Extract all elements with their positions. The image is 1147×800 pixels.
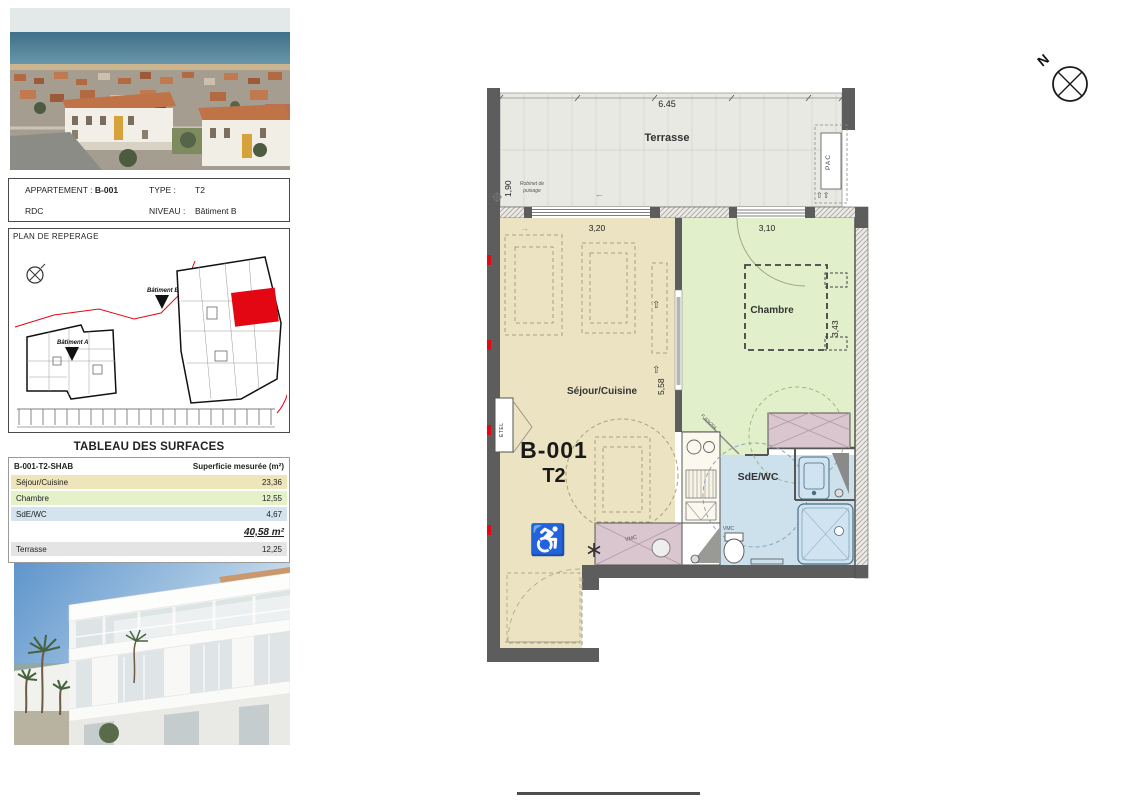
row-value: 12,55	[262, 494, 282, 503]
unit-type-label: T2	[509, 465, 599, 488]
aerial-photo-graphic	[10, 8, 290, 170]
north-compass: N	[1030, 46, 1102, 110]
aerial-photo	[10, 8, 290, 170]
shower	[798, 504, 853, 564]
beach	[10, 64, 290, 71]
chambre-height-dim: 3,43	[830, 320, 840, 337]
brochure-page: APPARTEMENT : B-001 TYPE : T2 RDC NIVEAU…	[0, 0, 1147, 800]
info-row-1: APPARTEMENT : B-001 TYPE : T2	[9, 179, 289, 200]
row-label: Chambre	[16, 494, 49, 503]
chambre-label: Chambre	[717, 305, 827, 316]
surface-table-header-left: B-001-T2-SHAB	[14, 462, 73, 471]
slide-arrow-icon: ⇧	[652, 300, 660, 311]
pac-arrows: ⇧⇧	[816, 191, 829, 200]
highlighted-unit	[231, 288, 279, 327]
building-a-label: Bâtiment A	[57, 340, 88, 346]
row-label: Séjour/Cuisine	[16, 478, 68, 487]
row-label: SdE/WC	[16, 510, 47, 519]
robinet-label: Robinet de puisage	[511, 181, 553, 194]
tree	[180, 132, 196, 148]
row-value: 12,25	[262, 545, 282, 554]
building-render-photo	[14, 563, 290, 745]
door-stop	[835, 489, 843, 497]
alcove-south-wall	[487, 648, 599, 662]
toilet	[724, 533, 744, 563]
floor-plan-graphic	[487, 85, 870, 675]
row-value: 23,36	[262, 478, 282, 487]
east-wall-insulated	[855, 218, 868, 578]
table-row-sejour: Séjour/Cuisine 23,36	[11, 475, 287, 489]
terrasse-label: Terrasse	[607, 132, 727, 144]
info-row-2: RDC NIVEAU : Bâtiment B	[9, 200, 289, 221]
partition-bottom	[675, 390, 682, 432]
partition-top	[675, 218, 682, 290]
vmc-label: VMC	[723, 526, 734, 532]
parking-strip	[17, 409, 275, 427]
technical-shaft	[682, 523, 720, 565]
south-wall	[582, 565, 868, 578]
type-label: TYPE :	[149, 185, 195, 195]
location-plan-graphic: Bâtiment A Bâtiment B	[9, 231, 287, 431]
surface-table: B-001-T2-SHAB Superficie mesurée (m²) Sé…	[8, 457, 290, 563]
niveau-label: NIVEAU :	[149, 206, 195, 216]
surface-total: 40,58 m²	[9, 523, 289, 542]
sejour-width-dim: 3,20	[547, 223, 647, 233]
wc-closet	[595, 523, 682, 565]
slide-arrow-icon: ⇧	[652, 365, 660, 376]
etel-label: ETEL	[499, 422, 505, 437]
appliance	[686, 470, 716, 498]
tree	[253, 143, 267, 157]
site-boundary-red-curve	[277, 381, 287, 413]
tree	[119, 149, 137, 167]
table-row-sde: SdE/WC 4,67	[11, 507, 287, 521]
location-plan-card: PLAN DE REPERAGE	[8, 228, 290, 433]
surface-table-title: TABLEAU DES SURFACES	[8, 441, 290, 453]
page-footer-mark	[517, 792, 700, 795]
mini-compass-icon	[27, 264, 45, 283]
row-label: Terrasse	[16, 545, 47, 554]
unit-code-label: B-001	[509, 437, 599, 464]
chambre-width-dim: 3,10	[722, 223, 812, 233]
building-a-footprint	[27, 325, 116, 399]
table-row-terrasse: Terrasse 12,25	[11, 542, 287, 556]
wheelchair-icon: ♿	[529, 523, 566, 558]
left-arrow-icon: ←	[595, 189, 604, 199]
sejour-label: Séjour/Cuisine	[542, 386, 662, 397]
building-b-label: Bâtiment B	[147, 288, 179, 294]
building-b-footprint	[177, 257, 281, 403]
sliding-door-panel[interactable]	[677, 297, 681, 385]
floor-label: RDC	[25, 206, 149, 216]
floor-plan: Terrasse 6.45 1,90 Robinet de puisage PA…	[487, 85, 870, 675]
appartement-label: APPARTEMENT : B-001	[25, 185, 149, 195]
foreground-building-left	[62, 92, 176, 150]
sea	[10, 32, 290, 66]
surface-table-header-right: Superficie mesurée (m²)	[193, 462, 284, 471]
ground	[14, 711, 69, 745]
shrub	[99, 723, 119, 743]
north-wall-band	[487, 207, 868, 218]
appartement-value: B-001	[95, 185, 118, 195]
entry-step	[582, 578, 599, 590]
entry-alcove	[500, 565, 582, 648]
row-value: 4,67	[266, 510, 282, 519]
foreground-building-right	[198, 104, 290, 166]
sde-label: SdE/WC	[713, 471, 803, 483]
apartment-info-card: APPARTEMENT : B-001 TYPE : T2 RDC NIVEAU…	[8, 178, 290, 222]
building-render-graphic	[14, 563, 290, 745]
wc-fixture	[652, 539, 670, 557]
terrace-right-wall	[842, 88, 855, 130]
terrasse-width-dim: 6.45	[617, 99, 717, 109]
sky	[10, 8, 290, 34]
placard-chambre	[768, 413, 850, 448]
table-row-chambre: Chambre 12,55	[11, 491, 287, 505]
surface-table-header: B-001-T2-SHAB Superficie mesurée (m²)	[9, 458, 289, 475]
pac-label: PAC	[825, 154, 832, 170]
right-arrow-icon: →	[521, 224, 529, 233]
type-value: T2	[195, 185, 289, 195]
niveau-value: Bâtiment B	[195, 206, 289, 216]
